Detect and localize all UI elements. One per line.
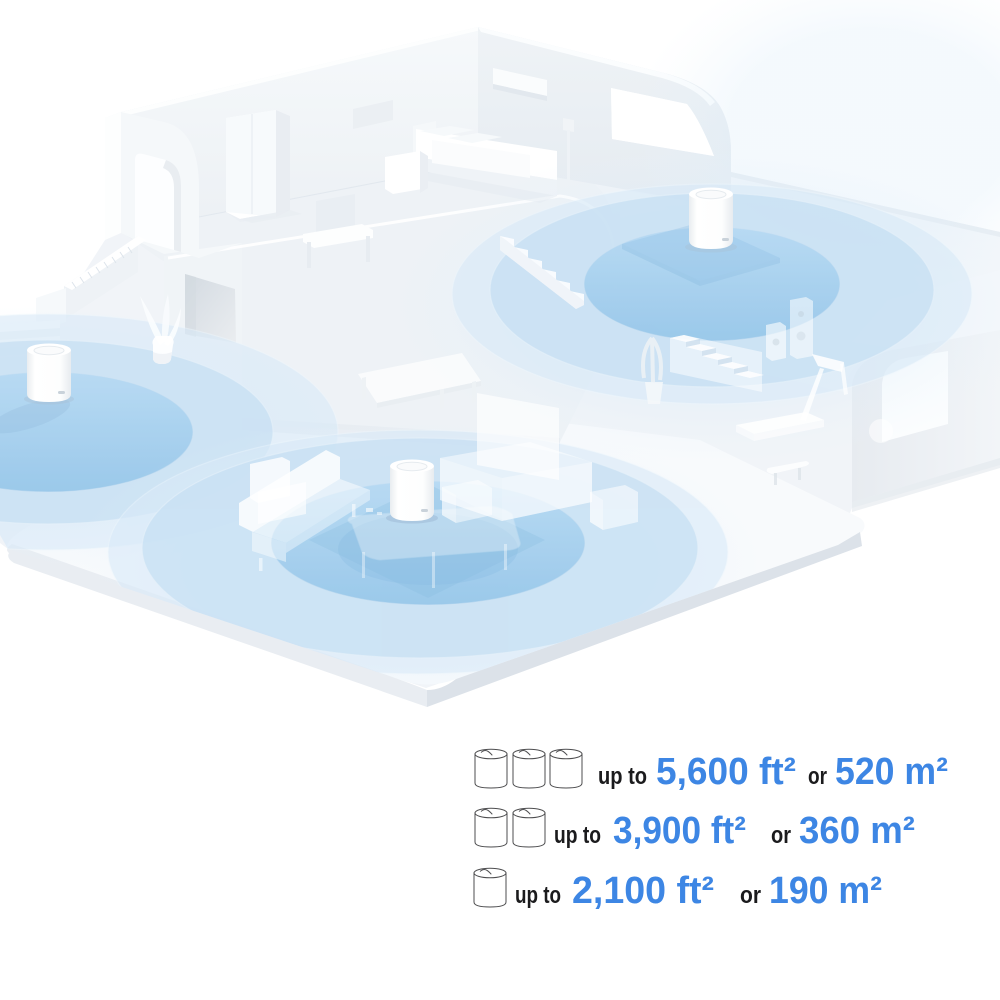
svg-text:up to: up to: [515, 882, 561, 909]
svg-text:3,900 ft²: 3,900 ft²: [613, 810, 746, 852]
svg-text:or: or: [771, 822, 791, 849]
svg-text:360 m²: 360 m²: [799, 810, 915, 852]
svg-text:or: or: [740, 882, 761, 909]
svg-text:2,100 ft²: 2,100 ft²: [572, 870, 714, 912]
svg-text:or: or: [808, 763, 827, 790]
svg-text:up to: up to: [554, 822, 601, 849]
svg-text:up to: up to: [598, 763, 647, 790]
svg-text:520 m²: 520 m²: [835, 751, 948, 793]
svg-text:190 m²: 190 m²: [769, 870, 882, 912]
svg-text:5,600 ft²: 5,600 ft²: [656, 751, 796, 793]
